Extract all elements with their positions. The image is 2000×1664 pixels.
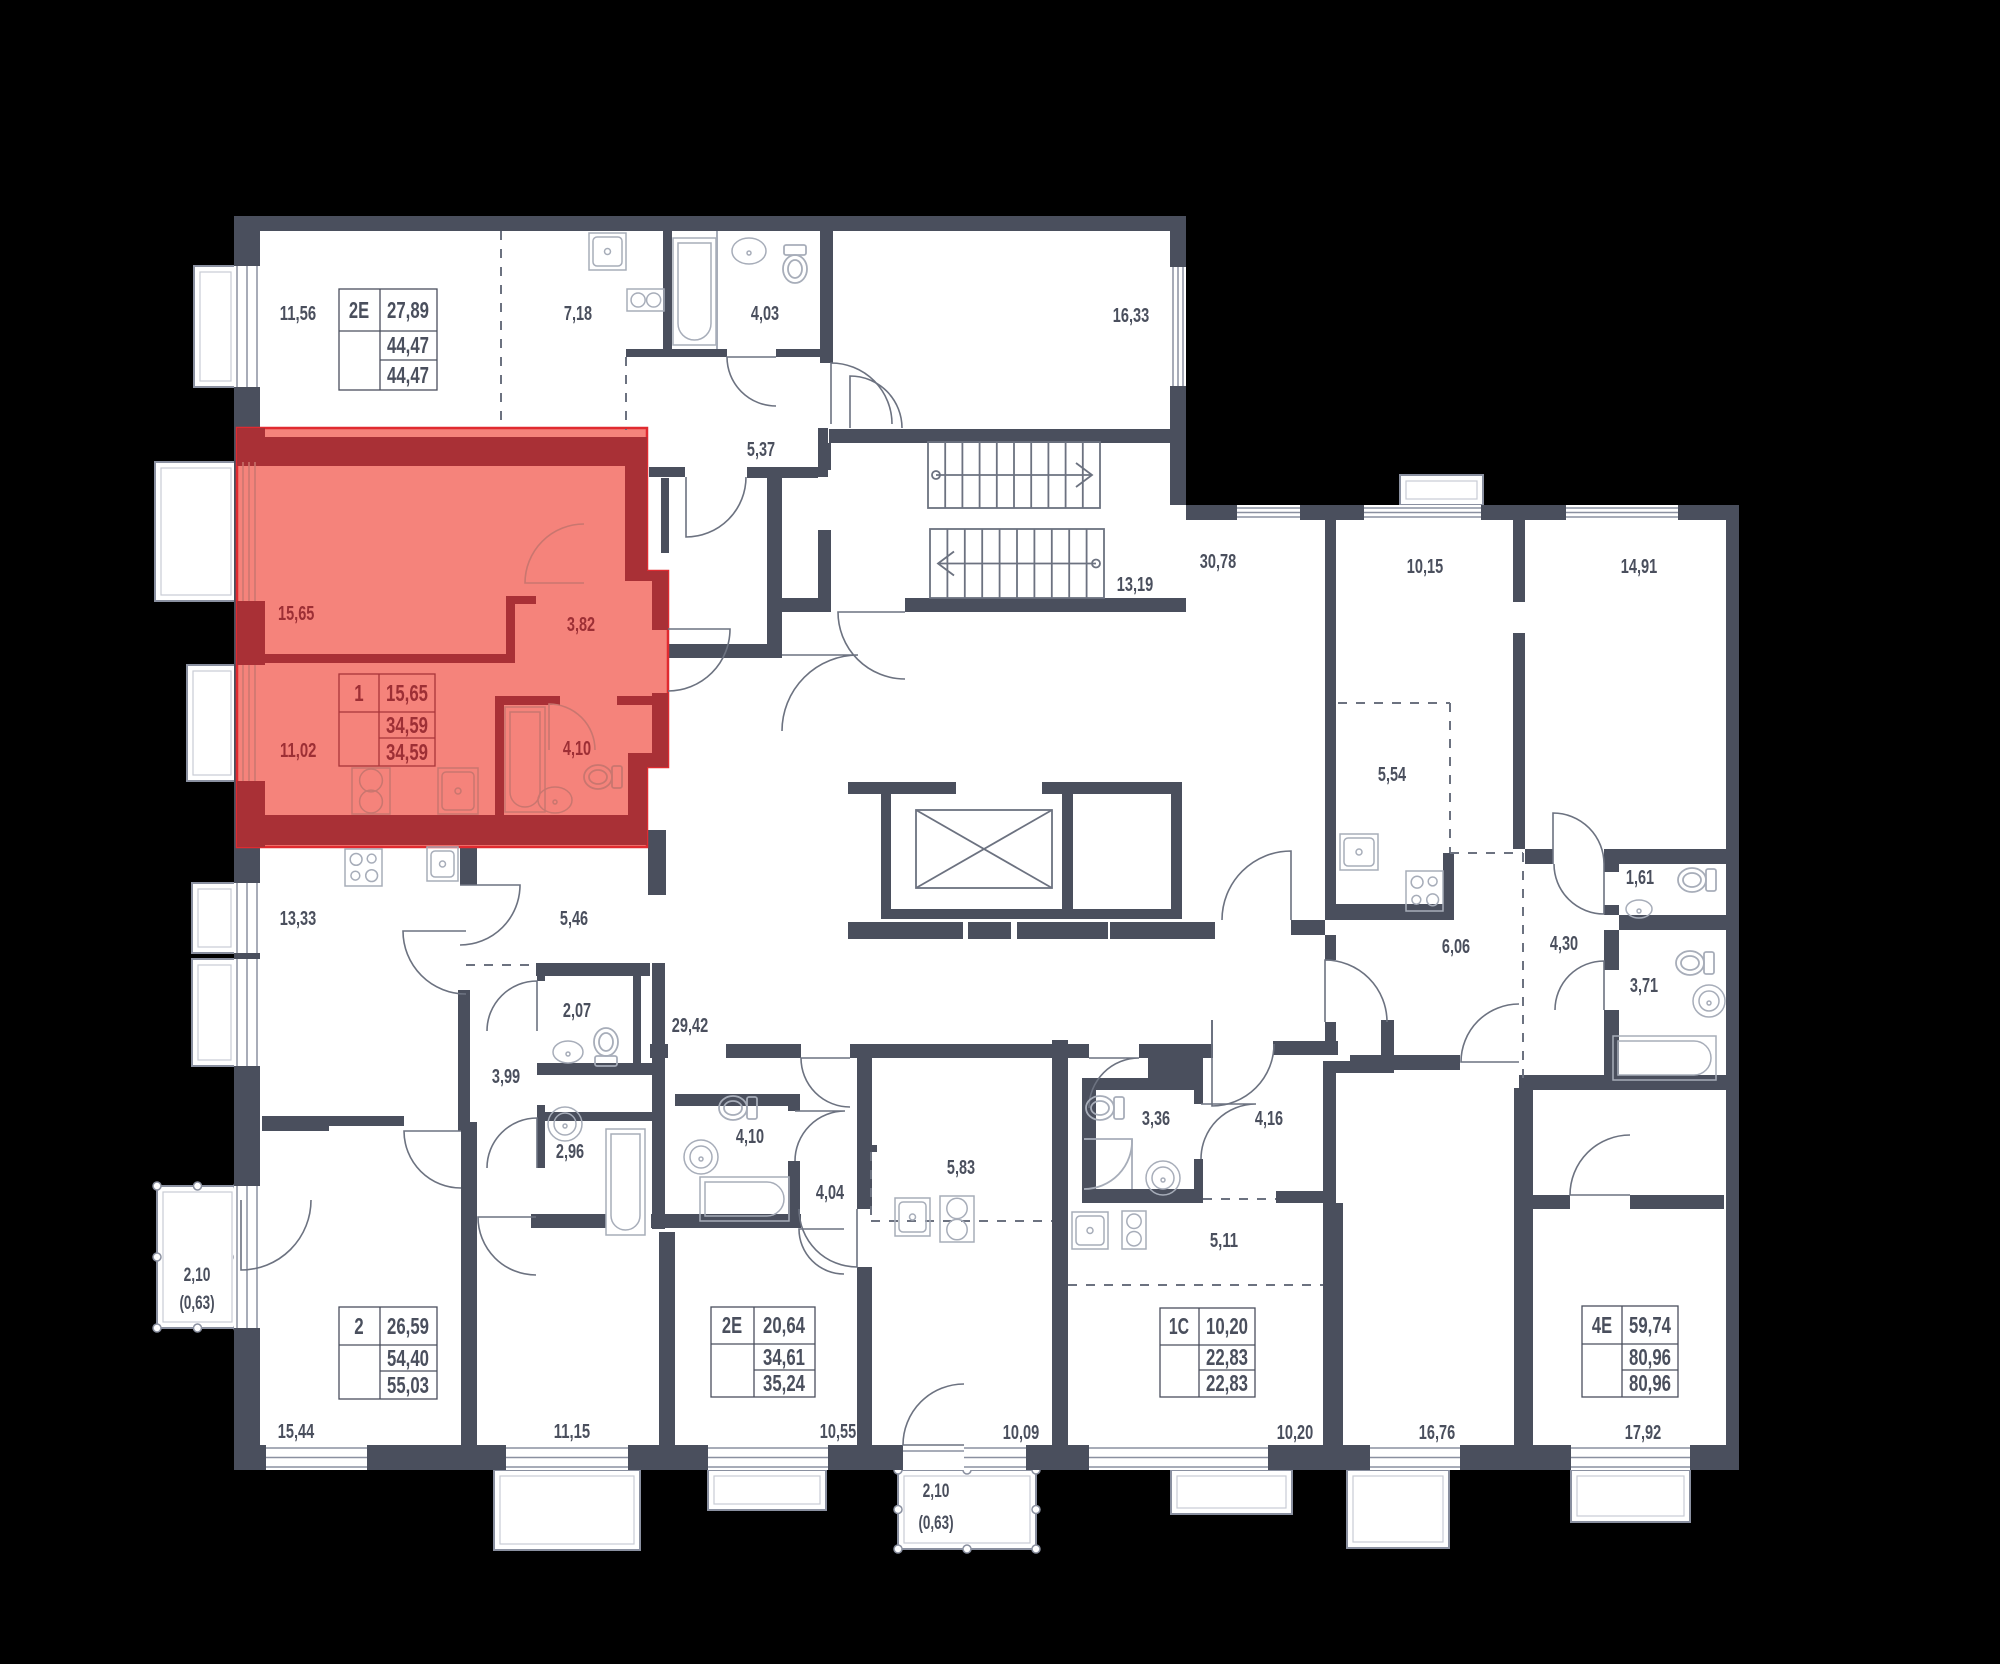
svg-text:(0,63): (0,63) (179, 1293, 214, 1314)
svg-text:34,61: 34,61 (763, 1344, 805, 1370)
svg-text:15,44: 15,44 (278, 1421, 315, 1443)
svg-text:59,74: 59,74 (1629, 1312, 1671, 1338)
svg-text:2E: 2E (349, 297, 369, 323)
svg-text:4,10: 4,10 (563, 738, 591, 760)
svg-text:34,59: 34,59 (386, 739, 428, 765)
svg-text:5,83: 5,83 (947, 1157, 975, 1179)
svg-text:27,89: 27,89 (387, 297, 429, 323)
svg-text:11,56: 11,56 (280, 303, 316, 325)
svg-text:5,54: 5,54 (1378, 764, 1407, 786)
svg-text:3,82: 3,82 (567, 614, 595, 636)
svg-text:29,42: 29,42 (672, 1015, 708, 1037)
svg-text:1C: 1C (1169, 1313, 1189, 1339)
svg-text:4,16: 4,16 (1255, 1108, 1283, 1130)
svg-text:13,19: 13,19 (1117, 574, 1153, 596)
svg-text:11,15: 11,15 (554, 1421, 590, 1443)
svg-text:7,18: 7,18 (564, 303, 592, 325)
svg-text:30,78: 30,78 (1200, 551, 1236, 573)
svg-text:2: 2 (354, 1313, 363, 1339)
svg-text:2,96: 2,96 (556, 1141, 584, 1163)
svg-text:4,03: 4,03 (751, 303, 779, 325)
svg-text:22,83: 22,83 (1206, 1344, 1248, 1370)
svg-text:13,33: 13,33 (280, 908, 316, 930)
svg-text:4E: 4E (1592, 1312, 1612, 1338)
svg-text:2E: 2E (722, 1312, 742, 1338)
svg-text:44,47: 44,47 (387, 332, 429, 358)
svg-text:2,10: 2,10 (923, 1481, 950, 1502)
svg-text:10,20: 10,20 (1206, 1313, 1248, 1339)
svg-text:1,61: 1,61 (1626, 867, 1654, 889)
svg-text:6,06: 6,06 (1442, 936, 1470, 958)
svg-text:4,10: 4,10 (736, 1126, 764, 1148)
svg-text:35,24: 35,24 (763, 1370, 805, 1396)
svg-text:5,11: 5,11 (1210, 1230, 1238, 1252)
svg-text:20,64: 20,64 (763, 1312, 805, 1338)
svg-text:11,02: 11,02 (280, 740, 316, 762)
svg-text:16,33: 16,33 (1113, 305, 1149, 327)
svg-text:80,96: 80,96 (1629, 1344, 1671, 1370)
svg-text:16,76: 16,76 (1419, 1422, 1455, 1444)
svg-text:1: 1 (354, 680, 364, 706)
svg-text:3,99: 3,99 (492, 1066, 520, 1088)
svg-text:3,71: 3,71 (1630, 975, 1658, 997)
svg-text:4,30: 4,30 (1550, 933, 1578, 955)
svg-text:26,59: 26,59 (387, 1313, 429, 1339)
svg-text:2,10: 2,10 (184, 1265, 211, 1286)
svg-text:80,96: 80,96 (1629, 1370, 1671, 1396)
svg-text:22,83: 22,83 (1206, 1370, 1248, 1396)
svg-text:4,04: 4,04 (816, 1182, 845, 1204)
svg-text:15,65: 15,65 (386, 680, 428, 706)
svg-text:44,47: 44,47 (387, 362, 429, 388)
svg-text:5,46: 5,46 (560, 908, 588, 930)
svg-text:54,40: 54,40 (387, 1345, 429, 1371)
svg-text:10,55: 10,55 (820, 1421, 856, 1443)
svg-text:10,20: 10,20 (1277, 1422, 1313, 1444)
svg-text:55,03: 55,03 (387, 1372, 429, 1398)
svg-text:17,92: 17,92 (1625, 1422, 1661, 1444)
svg-text:10,09: 10,09 (1003, 1422, 1039, 1444)
svg-text:3,36: 3,36 (1142, 1108, 1170, 1130)
svg-text:(0,63): (0,63) (918, 1513, 953, 1534)
svg-text:34,59: 34,59 (386, 712, 428, 738)
svg-text:14,91: 14,91 (1621, 556, 1657, 578)
svg-text:2,07: 2,07 (563, 1000, 591, 1022)
svg-text:10,15: 10,15 (1407, 556, 1443, 578)
svg-text:5,37: 5,37 (747, 439, 775, 461)
svg-text:15,65: 15,65 (278, 603, 314, 625)
